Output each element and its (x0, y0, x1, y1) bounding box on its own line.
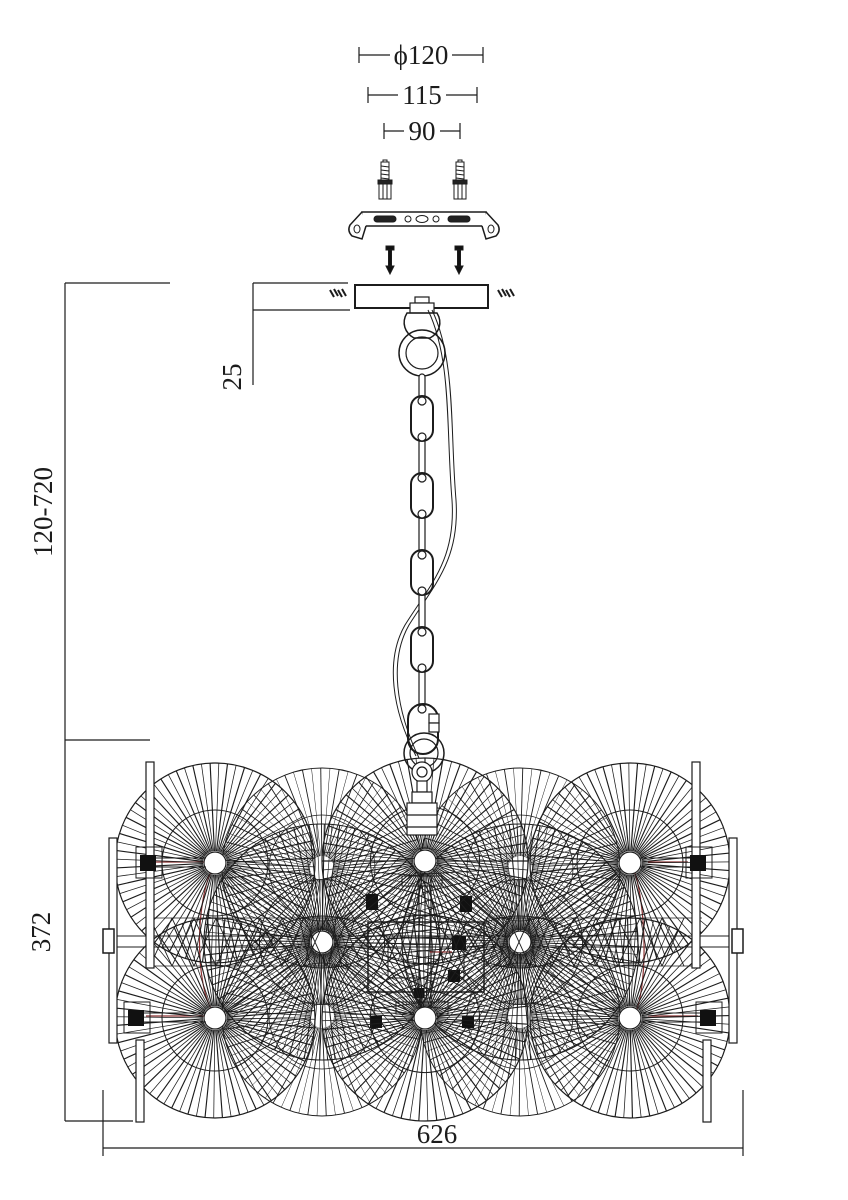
side-screw-right (498, 289, 514, 297)
chandelier-technical-drawing: ϕ120 115 90 120-720 372 25 626 (0, 0, 848, 1200)
dim-suspension-height: 120-720 (28, 467, 58, 557)
chain-links (411, 374, 433, 708)
chain-assembly (393, 310, 456, 835)
dim-body-height: 372 (26, 912, 56, 953)
canopy-assembly (330, 285, 514, 376)
dim-bracket-width: 115 (402, 80, 442, 110)
side-screw-left (330, 289, 346, 297)
wall-anchor-right (453, 160, 467, 199)
dim-canopy-thickness: 25 (217, 364, 247, 391)
dim-body-width: 626 (417, 1119, 458, 1149)
dim-anchor-spacing: 90 (409, 116, 436, 146)
hanging-loop-inner (406, 337, 438, 369)
wall-anchor-left (378, 160, 392, 199)
canopy-nut (410, 297, 434, 313)
sunburst-disc (115, 918, 315, 1118)
screw-right (455, 246, 463, 274)
mounting-hardware (349, 160, 499, 274)
body-finial (407, 762, 437, 835)
dim-canopy-diameter: ϕ120 (394, 40, 449, 70)
screw-left (386, 246, 394, 274)
mounting-bracket (349, 212, 499, 239)
quick-link-carabiner (408, 704, 439, 754)
